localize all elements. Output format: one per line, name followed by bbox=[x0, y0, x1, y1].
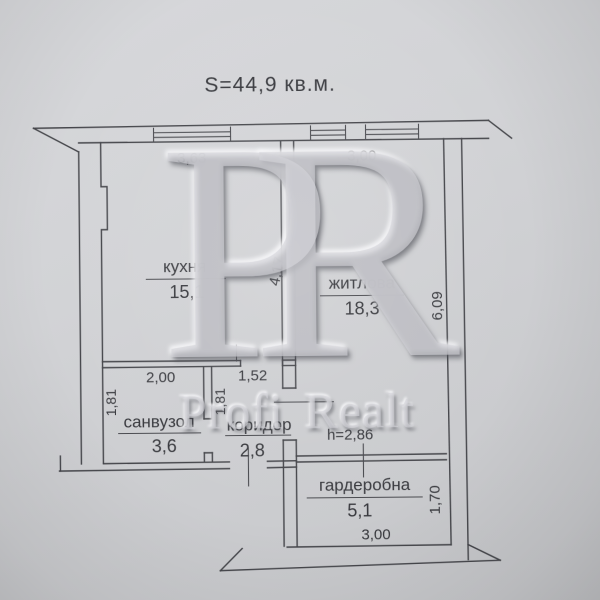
room-area-living: 18,3 bbox=[344, 298, 379, 318]
room-area-hallway: 2,8 bbox=[240, 440, 265, 460]
label-underline bbox=[307, 497, 423, 498]
dim-kitchen-depth: 4,17 bbox=[266, 255, 288, 287]
room-area-wardrobe: 5,1 bbox=[347, 500, 372, 520]
dim-hallway-depth: 1,81 bbox=[212, 388, 228, 416]
window-symbol bbox=[310, 125, 345, 141]
dim-ceiling-height: h=2,86 bbox=[327, 426, 373, 443]
window-symbol bbox=[153, 127, 230, 143]
room-label-kitchen: кухня bbox=[163, 257, 206, 276]
dim-wardrobe-width: 3,00 bbox=[361, 526, 390, 543]
floor-plan-drawing: S=44,9 кв.м. 3,63 3,00 4,17 6,09 2,00 1,… bbox=[0, 0, 600, 600]
dim-living-width: 3,00 bbox=[347, 147, 376, 164]
floor-plan-print: S=44,9 кв.м. 3,63 3,00 4,17 6,09 2,00 1,… bbox=[0, 0, 600, 600]
dim-kitchen-width: 3,63 bbox=[177, 150, 206, 167]
dim-hallway-width: 1,52 bbox=[238, 367, 267, 384]
dim-bathroom-depth: 1,81 bbox=[103, 389, 119, 417]
room-area-kitchen: 15,1 bbox=[169, 282, 204, 302]
floor-plan-photo: S=44,9 кв.м. 3,63 3,00 4,17 6,09 2,00 1,… bbox=[0, 0, 600, 600]
label-underline bbox=[320, 295, 404, 296]
dim-wardrobe-depth: 1,70 bbox=[427, 485, 444, 514]
dim-living-depth: 6,09 bbox=[429, 291, 446, 320]
window-symbol bbox=[365, 124, 418, 140]
label-underline bbox=[146, 279, 226, 280]
room-label-bathroom: санвузол bbox=[123, 412, 194, 432]
room-label-wardrobe: гардеробна bbox=[319, 475, 411, 495]
room-area-bathroom: 3,6 bbox=[152, 436, 177, 456]
total-area-title: S=44,9 кв.м. bbox=[204, 73, 336, 97]
dim-bathroom-width: 2,00 bbox=[146, 369, 175, 386]
label-underline bbox=[225, 435, 291, 436]
label-underline bbox=[118, 433, 201, 434]
room-label-living: житлова bbox=[329, 273, 396, 293]
room-label-hallway: коридор bbox=[227, 415, 292, 435]
